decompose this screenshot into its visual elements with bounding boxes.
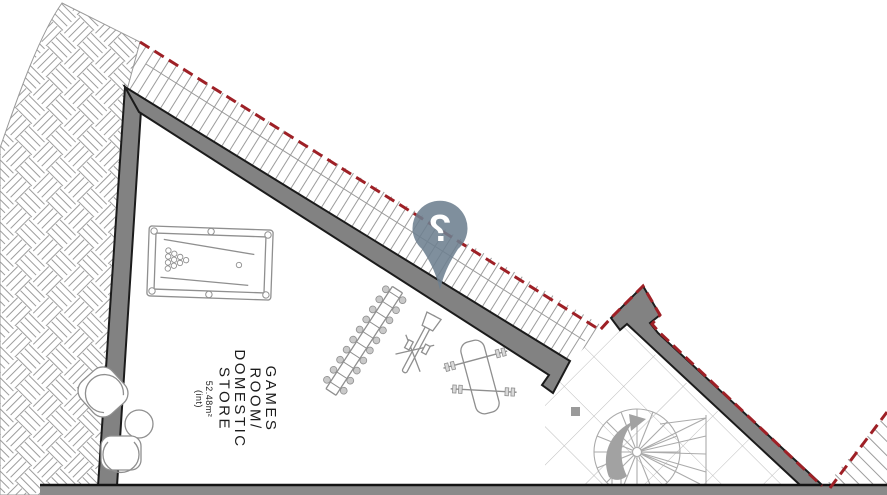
room-area: 52.48m² [204, 381, 214, 418]
floorplan-drawing: GAMES ROOM/ DOMESTIC STORE 52.48m² (int)… [0, 0, 887, 495]
door-post [571, 407, 580, 416]
room-label-line1: GAMES [262, 366, 279, 433]
floorplan-canvas: GAMES ROOM/ DOMESTIC STORE 52.48m² (int)… [0, 0, 887, 495]
armchair-lower [101, 436, 141, 472]
exercise-machine [390, 308, 447, 379]
room-label-line3: DOMESTIC [231, 349, 248, 448]
room-label-line4: STORE [216, 367, 233, 431]
room-area-note: (int) [194, 390, 204, 408]
pool-table [147, 226, 273, 300]
earth-hatch-right-corner [823, 413, 887, 489]
room-label-line2: ROOM/ [247, 367, 264, 430]
dumbbell-rack [320, 282, 409, 399]
question-mark-icon: ? [428, 208, 451, 250]
side-table [125, 410, 153, 438]
wall-bottom-band [40, 485, 887, 495]
room-label: GAMES ROOM/ DOMESTIC STORE 52.48m² (int) [194, 349, 279, 448]
hatch-band-divider [146, 64, 585, 341]
